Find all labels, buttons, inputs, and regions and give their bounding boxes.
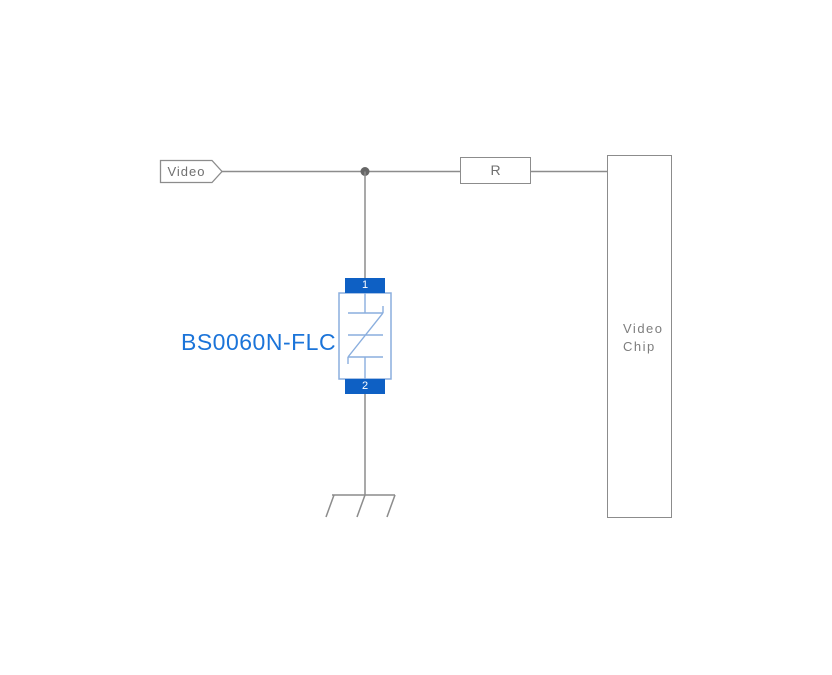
video-net-tag-label: Video: [160, 160, 213, 183]
tvs-pin-1: 1: [345, 278, 385, 293]
ground-symbol: [326, 495, 395, 517]
video-chip-label: Video Chip: [607, 320, 672, 356]
wire-layer: [0, 0, 832, 675]
video-chip-label-line1: Video: [623, 320, 672, 338]
resistor-label: R: [460, 157, 531, 184]
video-chip-label-line2: Chip: [623, 338, 672, 356]
tvs-part-number: BS0060N-FLC: [181, 329, 333, 356]
schematic-canvas: Video R Video Chip 1 2 BS0060N-FLC: [0, 0, 832, 675]
tvs-pin-2: 2: [345, 379, 385, 394]
